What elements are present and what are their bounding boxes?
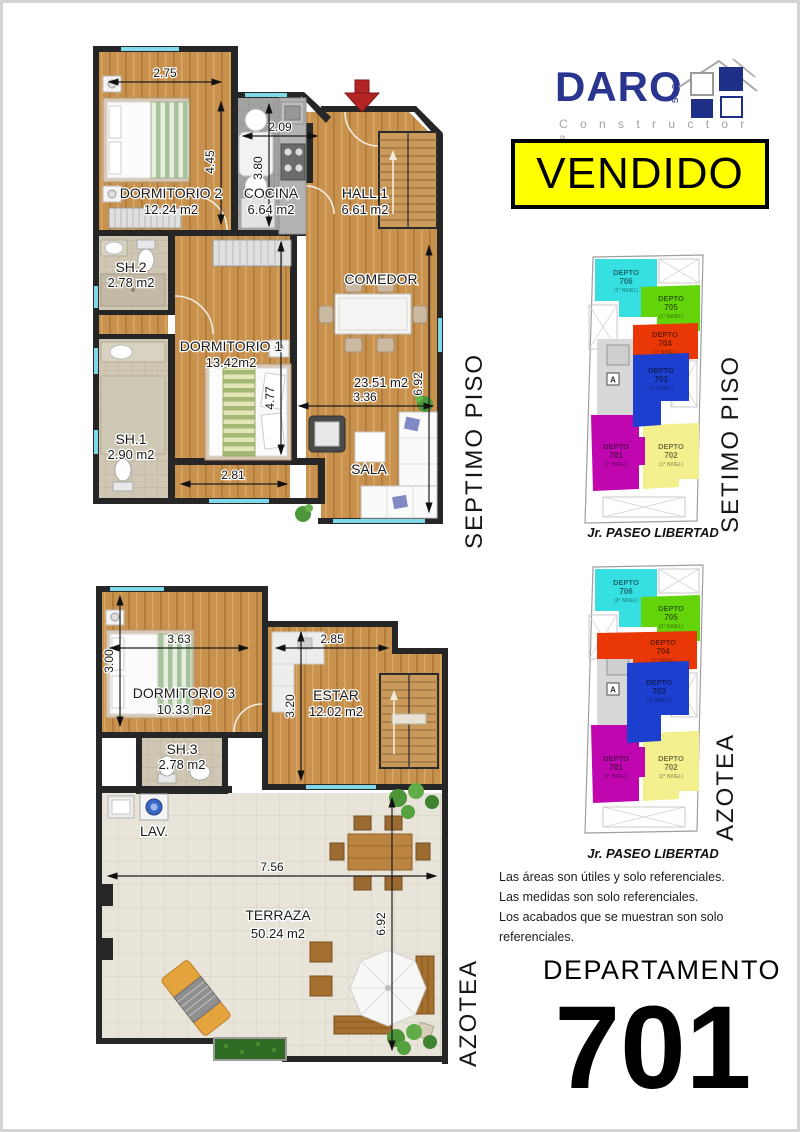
svg-text:(1° NIVEL): (1° NIVEL) <box>653 350 677 356</box>
svg-text:702: 702 <box>664 763 678 772</box>
elevator-label: A <box>610 686 616 695</box>
svg-text:704: 704 <box>658 339 672 348</box>
logo-house-icon <box>677 57 759 119</box>
disclaimer-line: Las áreas son útiles y solo referenciale… <box>499 867 799 887</box>
room-label-sh3: SH.3 <box>166 741 197 757</box>
room-area-social: 23.51 m2 <box>354 375 408 390</box>
planter-icon <box>214 1038 286 1060</box>
department-number: 701 <box>543 989 763 1107</box>
svg-text:703: 703 <box>654 375 668 384</box>
dim-label: 3.63 <box>167 632 191 646</box>
svg-text:DEPTO: DEPTO <box>613 578 639 587</box>
dim-label: 3.80 <box>251 156 265 180</box>
svg-text:DEPTO: DEPTO <box>652 330 678 339</box>
room-area-dormitorio1: 13.42m2 <box>206 355 257 370</box>
svg-text:DEPTO: DEPTO <box>646 678 672 687</box>
svg-text:(1° NIVEL): (1° NIVEL) <box>604 462 628 468</box>
stairs-icon <box>380 674 438 768</box>
svg-text:(2° NIVEL): (2° NIVEL) <box>647 698 671 704</box>
room-label-lav: LAV. <box>140 823 168 839</box>
room-label-sala: SALA <box>351 461 387 477</box>
floor-plan-azotea: 3.63 3.00 2.85 3.20 7.56 6.92 DORMITORIO… <box>96 586 464 1094</box>
core: A <box>597 339 633 427</box>
svg-text:(2° NIVEL): (2° NIVEL) <box>651 658 675 664</box>
room-area-terraza: 50.24 m2 <box>251 926 305 941</box>
key-plan-septimo: A DEPTO 706 (1° NIVEL) DEPTO 705 (1° NIV… <box>583 253 718 538</box>
svg-text:702: 702 <box>664 451 678 460</box>
svg-text:(1° NIVEL): (1° NIVEL) <box>614 288 638 294</box>
dim-label: 4.77 <box>263 386 277 410</box>
floor-plan-septimo-piso: 2.75 4.45 2.09 3.80 6.92 3.36 4.77 2.81 … <box>93 46 447 540</box>
svg-text:(1° NIVEL): (1° NIVEL) <box>659 314 683 320</box>
room-area-estar: 12.02 m2 <box>309 704 363 719</box>
daro-logo: DARO sac C o n s t r u c t o r a <box>553 57 763 139</box>
disclaimer-line: Las medidas son solo referenciales. <box>499 887 799 907</box>
planA-side-label: AZOTEA <box>441 938 497 1088</box>
svg-text:DEPTO: DEPTO <box>650 638 676 647</box>
sold-banner-label: VENDIDO <box>536 149 743 199</box>
svg-text:(2° NIVEL): (2° NIVEL) <box>604 774 628 780</box>
svg-text:705: 705 <box>664 303 678 312</box>
svg-text:DEPTO: DEPTO <box>658 754 684 763</box>
dim-label: 3.00 <box>102 649 116 673</box>
street-label: Jr. PASEO LIBERTAD <box>578 525 728 540</box>
room-label-estar: ESTAR <box>313 687 359 703</box>
svg-text:DEPTO: DEPTO <box>613 268 639 277</box>
key7-side-label: SETIMO PISO <box>709 355 753 533</box>
room-label-cocina: COCINA <box>244 185 299 201</box>
dim-label: 2.81 <box>221 468 245 482</box>
svg-text:DEPTO: DEPTO <box>603 442 629 451</box>
svg-text:703: 703 <box>652 687 666 696</box>
disclaimer-text: Las áreas son útiles y solo referenciale… <box>499 867 799 947</box>
svg-text:701: 701 <box>609 763 623 772</box>
room-area-sh1: 2.90 m2 <box>108 447 155 462</box>
svg-text:704: 704 <box>656 647 670 656</box>
svg-text:DEPTO: DEPTO <box>658 442 684 451</box>
dim-label: 4.45 <box>203 150 217 174</box>
elevator-label: A <box>610 376 616 385</box>
keyA-side-label: AZOTEA <box>703 731 749 843</box>
room-label-terraza: TERRAZA <box>245 907 311 923</box>
room-area-sh2: 2.78 m2 <box>108 275 155 290</box>
room-label-sh2: SH.2 <box>115 259 146 275</box>
svg-text:705: 705 <box>664 613 678 622</box>
dim-label: 2.09 <box>268 120 292 134</box>
svg-text:706: 706 <box>619 587 633 596</box>
wardrobe-icon <box>213 240 291 266</box>
disclaimer-line: Los acabados que se muestran son solo re… <box>499 907 799 947</box>
room-label-dormitorio1: DORMITORIO 1 <box>180 338 283 354</box>
flyer-page: 2.75 4.45 2.09 3.80 6.92 3.36 4.77 2.81 … <box>0 0 800 1132</box>
street-label: Jr. PASEO LIBERTAD <box>578 846 728 861</box>
dim-label: 6.92 <box>374 912 388 936</box>
room-label-sh1: SH.1 <box>115 431 146 447</box>
room-label-dormitorio3: DORMITORIO 3 <box>133 685 236 701</box>
logo-brand-text: DARO <box>555 63 683 111</box>
dim-label: 2.75 <box>153 66 177 80</box>
room-area-dormitorio2: 12.24 m2 <box>144 202 198 217</box>
dim-label: 6.92 <box>411 372 425 396</box>
svg-text:(2° NIVEL): (2° NIVEL) <box>614 598 638 604</box>
svg-text:(2° NIVEL): (2° NIVEL) <box>659 624 683 630</box>
svg-text:701: 701 <box>609 451 623 460</box>
svg-text:(1° NIVEL): (1° NIVEL) <box>659 462 683 468</box>
plan7-side-label: SEPTIMO PISO <box>447 338 503 563</box>
key-plan-azotea: A DEPTO 706 (2° NIVEL) DEPTO 705 (2° NIV… <box>583 563 718 848</box>
room-label-hall1: HALL 1 <box>342 185 388 201</box>
svg-text:(2° NIVEL): (2° NIVEL) <box>659 774 683 780</box>
room-label-comedor: COMEDOR <box>344 271 417 287</box>
dim-label: 7.56 <box>260 860 284 874</box>
room-area-cocina: 6.64 m2 <box>248 202 295 217</box>
room-area-dormitorio3: 10.33 m2 <box>157 702 211 717</box>
svg-text:DEPTO: DEPTO <box>658 294 684 303</box>
svg-text:DEPTO: DEPTO <box>648 366 674 375</box>
svg-text:DEPTO: DEPTO <box>603 754 629 763</box>
svg-text:(1° NIVEL): (1° NIVEL) <box>649 386 673 392</box>
svg-text:706: 706 <box>619 277 633 286</box>
room-area-hall1: 6.61 m2 <box>342 202 389 217</box>
svg-text:DEPTO: DEPTO <box>658 604 684 613</box>
dim-label: 3.20 <box>283 694 297 718</box>
sold-banner: VENDIDO <box>511 139 769 209</box>
room-label-dormitorio2: DORMITORIO 2 <box>120 185 223 201</box>
dim-label: 3.36 <box>353 390 377 404</box>
dim-label: 2.85 <box>320 632 344 646</box>
room-area-sh3: 2.78 m2 <box>159 757 206 772</box>
